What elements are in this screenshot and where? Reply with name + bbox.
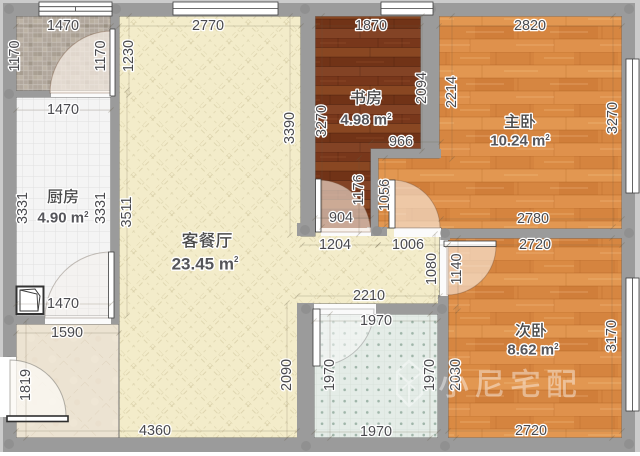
- svg-text:2720: 2720: [515, 423, 547, 439]
- svg-text:1819: 1819: [18, 369, 34, 401]
- svg-text:23.45 m2: 23.45 m2: [172, 255, 239, 274]
- svg-text:1970: 1970: [322, 359, 338, 391]
- svg-text:1870: 1870: [355, 18, 387, 34]
- svg-text:3511: 3511: [119, 197, 135, 228]
- svg-text:1006: 1006: [392, 237, 424, 253]
- svg-text:3331: 3331: [15, 192, 31, 224]
- svg-text:8.62 m2: 8.62 m2: [507, 342, 559, 359]
- svg-text:4.98 m2: 4.98 m2: [340, 112, 392, 129]
- svg-text:1140: 1140: [449, 254, 465, 285]
- svg-text:904: 904: [329, 210, 353, 226]
- svg-text:1470: 1470: [47, 18, 79, 34]
- svg-text:1970: 1970: [360, 424, 392, 440]
- svg-text:2780: 2780: [517, 211, 549, 227]
- svg-text:2030: 2030: [448, 359, 464, 391]
- svg-text:2720: 2720: [519, 237, 551, 253]
- svg-text:1470: 1470: [47, 102, 79, 118]
- svg-text:2820: 2820: [514, 18, 546, 34]
- svg-text:3331: 3331: [93, 192, 109, 224]
- svg-text:966: 966: [389, 134, 413, 150]
- svg-text:2210: 2210: [353, 288, 385, 304]
- svg-text:1970: 1970: [360, 313, 392, 329]
- svg-text:1170: 1170: [7, 41, 23, 72]
- svg-text:10.24 m2: 10.24 m2: [490, 133, 550, 150]
- svg-text:1470: 1470: [47, 296, 79, 312]
- svg-text:1230: 1230: [121, 40, 137, 72]
- svg-text:1056: 1056: [377, 179, 393, 211]
- svg-text:4360: 4360: [139, 423, 171, 439]
- svg-text:1590: 1590: [51, 325, 83, 341]
- svg-text:2214: 2214: [444, 76, 460, 108]
- svg-text:1204: 1204: [319, 237, 351, 253]
- svg-text:3270: 3270: [605, 102, 621, 134]
- svg-text:3390: 3390: [282, 112, 298, 144]
- svg-text:1176: 1176: [351, 175, 367, 206]
- svg-text:1970: 1970: [422, 359, 438, 391]
- svg-text:1080: 1080: [424, 253, 440, 285]
- svg-text:2094: 2094: [414, 72, 430, 104]
- svg-text:2090: 2090: [279, 359, 295, 391]
- svg-text:3270: 3270: [314, 105, 330, 137]
- svg-text:1170: 1170: [93, 41, 109, 72]
- svg-text:3170: 3170: [604, 320, 620, 352]
- svg-text:4.90 m2: 4.90 m2: [37, 210, 89, 227]
- svg-text:2770: 2770: [192, 18, 224, 34]
